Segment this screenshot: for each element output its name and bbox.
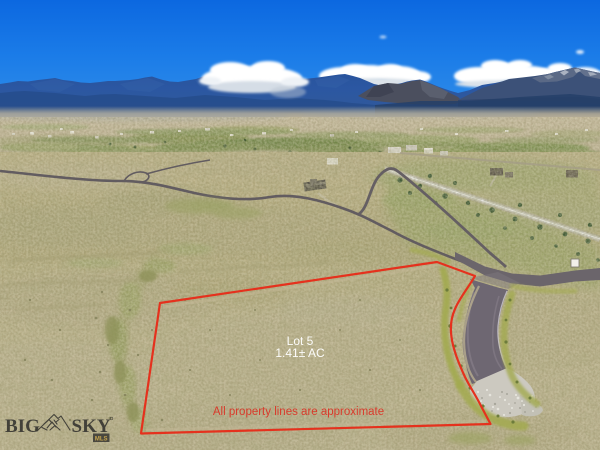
- svg-text:BIG: BIG: [5, 416, 40, 437]
- svg-text:MLS: MLS: [95, 437, 108, 443]
- svg-text:1.41± AC: 1.41± AC: [275, 346, 325, 360]
- svg-text:All property lines are approxi: All property lines are approximate: [213, 406, 384, 418]
